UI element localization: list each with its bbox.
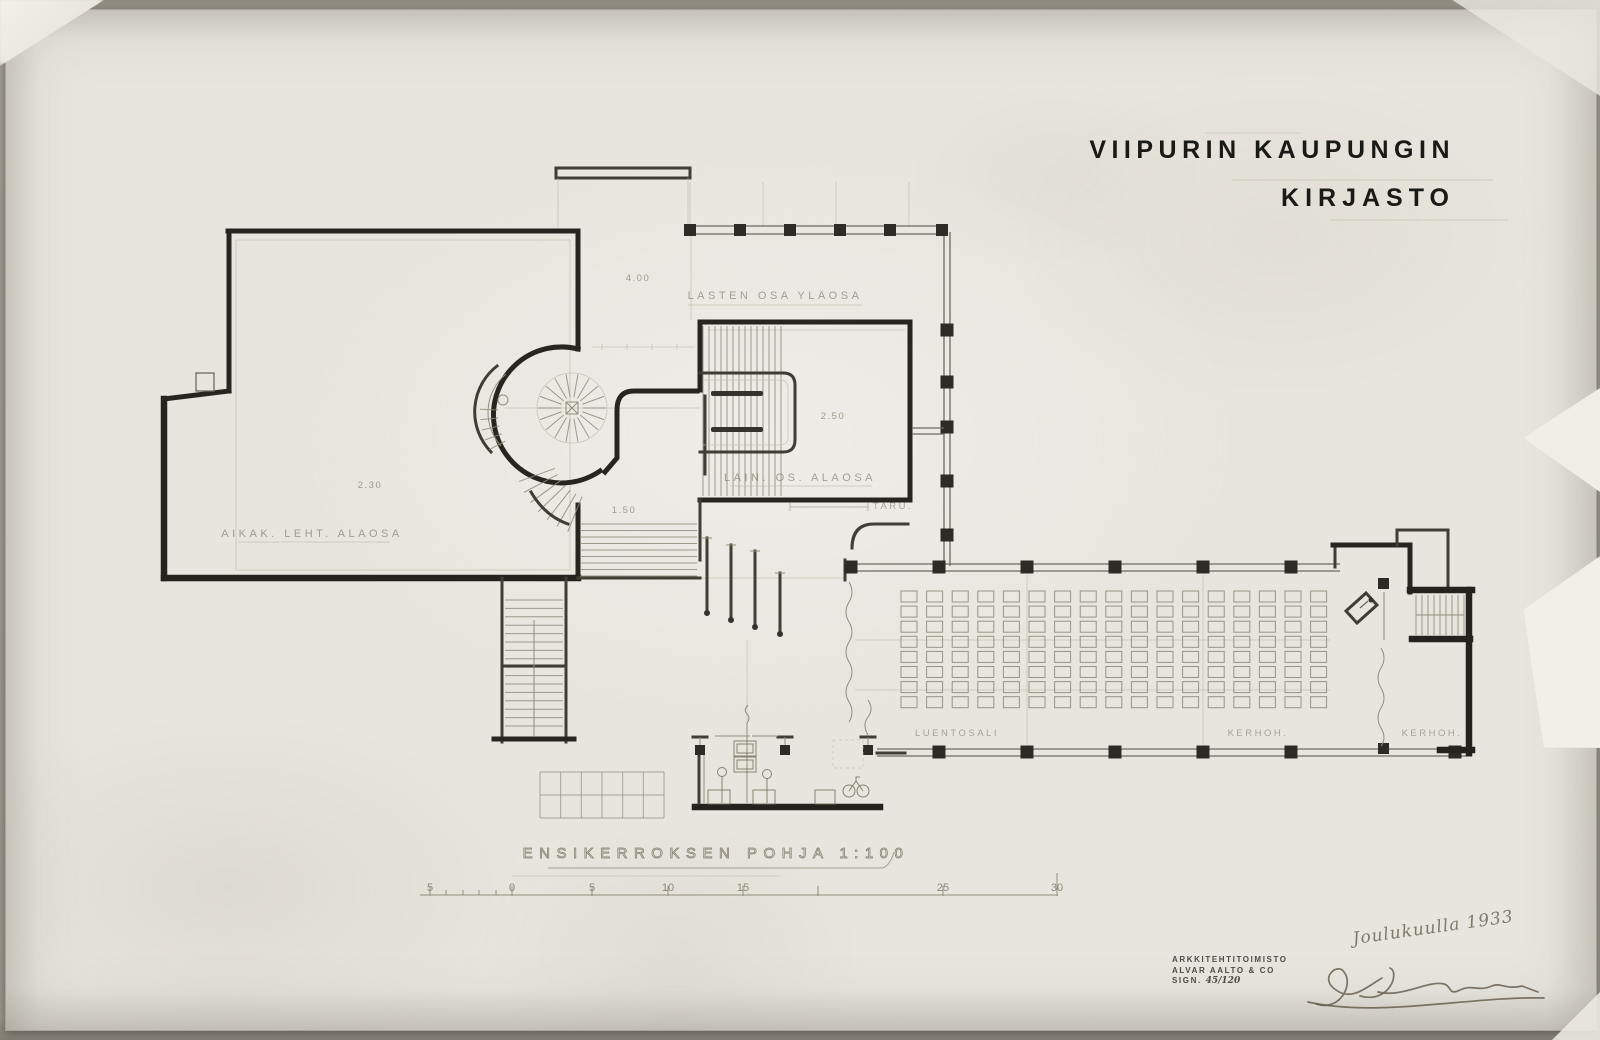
title-line-2: KIRJASTO [1089, 184, 1455, 213]
room-label-club-1: KERHOH. [1228, 728, 1289, 739]
entry-step-fan [519, 468, 582, 531]
plan-caption: ENSIKERROKSEN POHJA 1:100 [523, 845, 910, 862]
title-line-1: VIIPURIN KAUPUNGIN [1089, 136, 1455, 165]
dim-4-00: 4.00 [626, 273, 651, 284]
title-block: VIIPURIN KAUPUNGIN KIRJASTO [1089, 136, 1455, 213]
break-line [865, 700, 871, 735]
stamp-sign-label: SIGN. [1172, 976, 1202, 985]
lecture-wing [845, 530, 1473, 759]
construction-lines [236, 133, 1508, 745]
entrance-vestibule [475, 347, 607, 532]
door-leaves [702, 538, 785, 637]
scale-bar-label: 25 [937, 882, 949, 894]
reading-room-walls [164, 231, 578, 578]
dim-1-50: 1.50 [612, 505, 637, 516]
scale-bar-label: 5 [427, 882, 433, 894]
dim-2-30: 2.30 [358, 480, 383, 491]
wall-detail [196, 373, 214, 391]
room-label-taru: TARU. [873, 501, 913, 512]
scale-bar-label: 30 [1051, 882, 1063, 894]
pergola-grid [540, 772, 664, 818]
scale-bar-label: 15 [737, 882, 749, 894]
room-label-lending: LAIN. OS. ALAOSA [724, 472, 876, 484]
scale-bar-label: 5 [589, 882, 595, 894]
room-label-periodicals: AIKAK. LEHT. ALAOSA [221, 528, 402, 540]
bicycle-glyph [843, 777, 869, 797]
dim-2-50: 2.50 [821, 411, 846, 422]
scale-bar-label: 0 [509, 882, 515, 894]
room-label-club-2: KERHOH. [1402, 728, 1463, 739]
break-line [1378, 648, 1384, 746]
lower-left-stair [494, 578, 574, 742]
caption-group: ENSIKERROKSEN POHJA 1:100 [512, 845, 909, 876]
entry-steps [578, 524, 700, 578]
room-label-lecture-hall: LUENTOSALI [915, 728, 999, 739]
break-line [846, 582, 852, 722]
entrance-canopy [556, 168, 690, 228]
room-label-children-upper: LASTEN OSA YLÄOSA [688, 290, 863, 302]
scale-bar-label: 10 [662, 882, 674, 894]
architect-stamp: ARKKITEHTITOIMISTO ALVAR AALTO & CO SIGN… [1172, 955, 1288, 987]
signature-scrawl [1308, 968, 1544, 1008]
piano-glyph [1346, 593, 1377, 623]
stamp-office-line-1: ARKKITEHTITOIMISTO [1172, 955, 1288, 966]
stamp-sign-value: 45/120 [1206, 976, 1241, 986]
stamp-office-line-2: ALVAR AALTO & CO [1172, 966, 1288, 977]
room-labels: LASTEN OSA YLÄOSA AIKAK. LEHT. ALAOSA LA… [221, 290, 1462, 739]
